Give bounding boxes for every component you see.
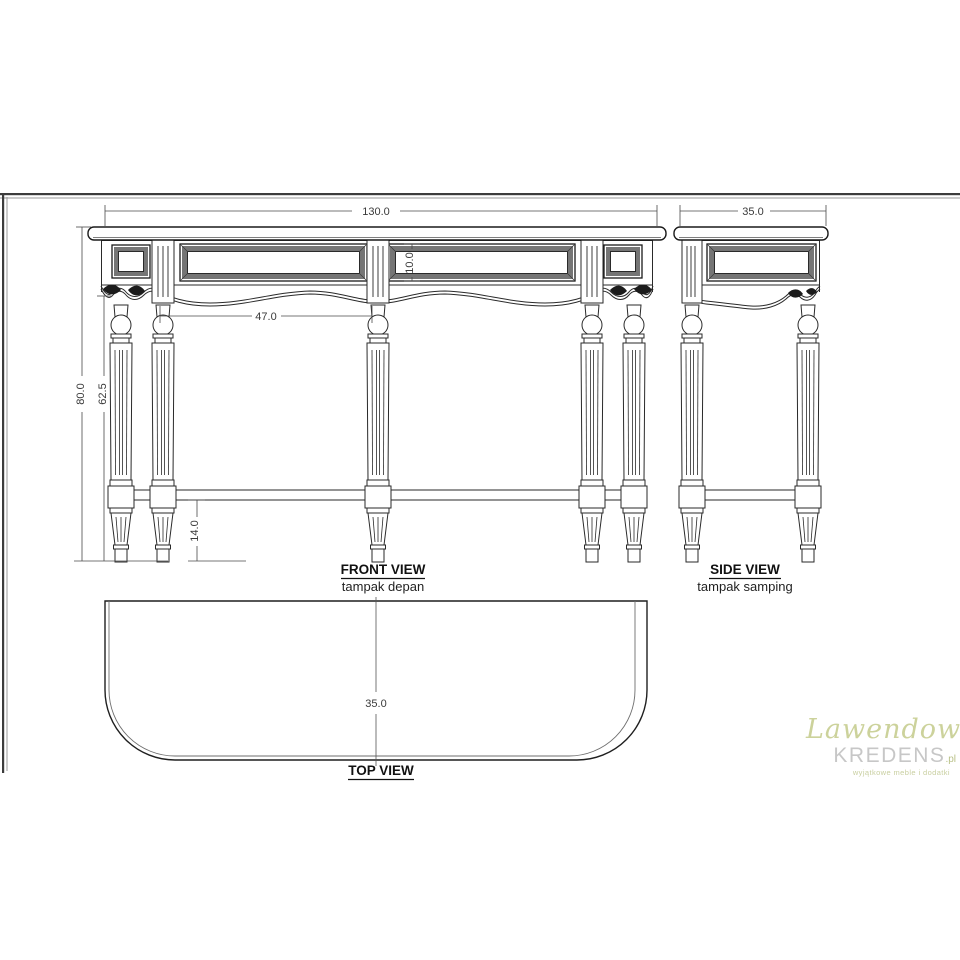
front-panel-small-left [112, 245, 150, 278]
side-view-sublabel: tampak samping [697, 579, 792, 594]
side-legs [679, 305, 821, 562]
side-pilaster [682, 240, 702, 303]
dimension-stretcher-clearance: 14.0 [188, 500, 246, 561]
watermark-brand-script: Lawendowy [806, 716, 954, 743]
front-panel-long-left [180, 244, 367, 281]
dimension-bay-width: 47.0 [160, 306, 372, 323]
side-view [674, 227, 828, 562]
dim-leg-height: 62.5 [97, 383, 109, 404]
top-view-inner-line [109, 601, 635, 756]
watermark: Lawendowy KREDENS.pl wyjątkowe meble i d… [806, 716, 956, 777]
dim-bay-width: 47.0 [255, 311, 276, 323]
dim-front-width: 130.0 [362, 206, 390, 218]
side-view-label: SIDE VIEW [710, 562, 780, 577]
view-labels: FRONT VIEW tampak depan SIDE VIEW tampak… [341, 562, 793, 780]
dimension-overall-height: 80.0 [75, 227, 91, 561]
front-panel-small-right [604, 245, 642, 278]
dim-side-depth: 35.0 [742, 206, 763, 218]
front-view-label: FRONT VIEW [341, 562, 426, 577]
watermark-brand-tld: .pl [945, 754, 956, 765]
dim-panel-height: 10.0 [404, 252, 416, 273]
side-panel [707, 244, 816, 281]
front-view-sublabel: tampak depan [342, 579, 424, 594]
drawing-canvas: 35.0 130.0 35.0 80.0 [0, 0, 960, 960]
dim-overall-height: 80.0 [75, 383, 87, 404]
dim-top-depth: 35.0 [365, 698, 386, 710]
side-tabletop [674, 227, 828, 240]
dimension-front-width: 130.0 [105, 205, 657, 226]
top-view: 35.0 [105, 597, 647, 766]
dimension-side-depth: 35.0 [680, 205, 826, 226]
side-apron-wave [682, 286, 820, 309]
front-panel-long-right [388, 244, 575, 281]
technical-drawing: 35.0 130.0 35.0 80.0 [0, 0, 960, 960]
front-view [88, 227, 666, 562]
dim-stretcher-clearance: 14.0 [189, 520, 201, 541]
watermark-brand-name: KREDENS [833, 745, 945, 766]
top-view-label: TOP VIEW [348, 763, 414, 778]
front-tabletop [88, 227, 666, 240]
watermark-tagline: wyjątkowe meble i dodatki [806, 769, 950, 777]
